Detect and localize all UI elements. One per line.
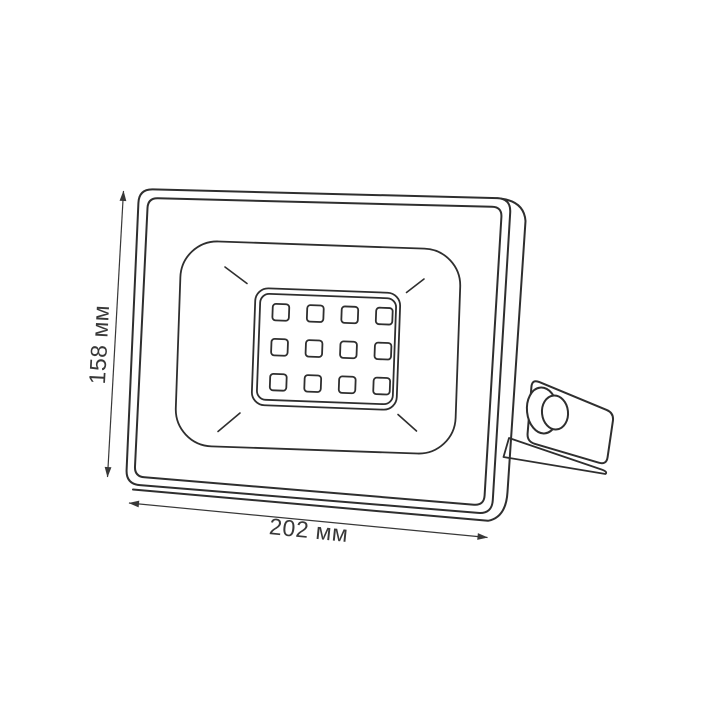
height-dimension: 158 мм (84, 191, 124, 477)
mounting-bracket (504, 381, 614, 474)
floodlight-body-outline (127, 189, 511, 513)
product-diagram-page: 158 мм 202 мм (0, 0, 720, 720)
floodlight-dimension-diagram: 158 мм 202 мм (0, 0, 720, 720)
width-label: 202 мм (268, 513, 350, 547)
height-label: 158 мм (84, 304, 114, 385)
